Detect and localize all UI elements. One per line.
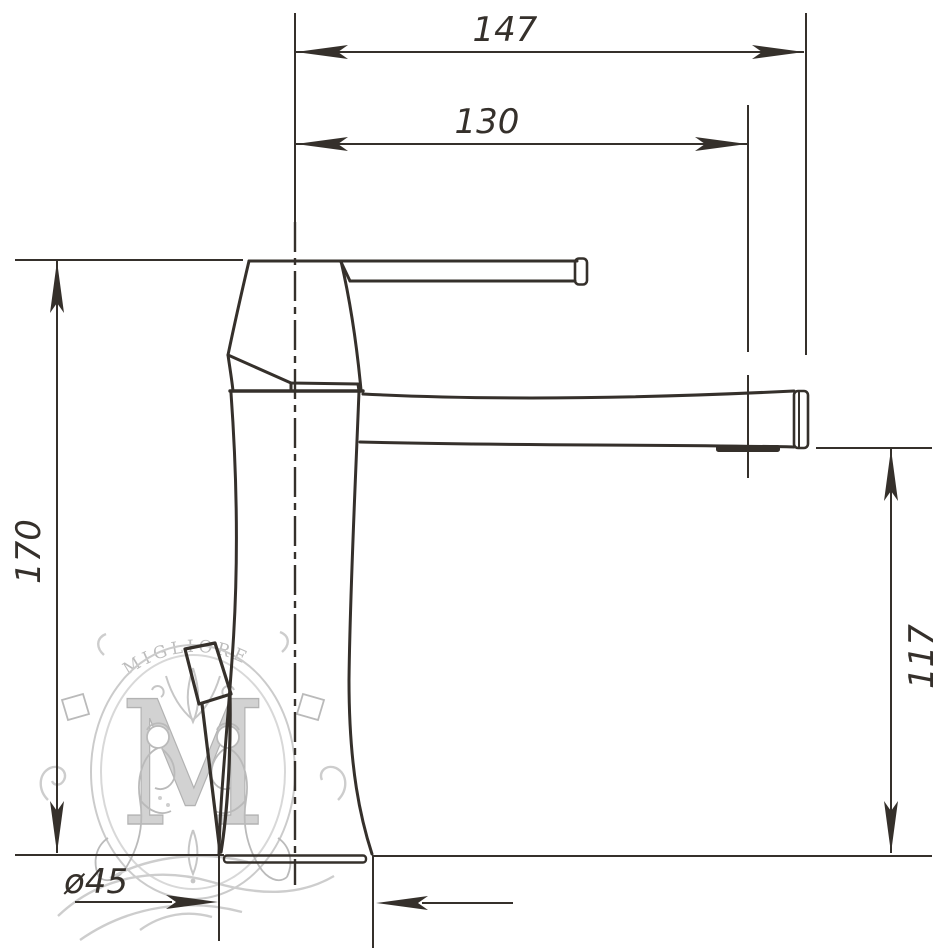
dimension-117: 117 <box>884 449 942 853</box>
dim-label-dia45: ø45 <box>63 862 128 902</box>
dim-label-170: 170 <box>9 519 49 584</box>
spout-top-edge <box>363 391 794 398</box>
technical-drawing-canvas: MIGLIORE M <box>0 0 950 950</box>
dimension-130: 130 <box>296 102 747 151</box>
cap-neck-left <box>228 355 233 391</box>
dimension-147: 147 <box>296 10 804 59</box>
watermark-monogram: M <box>120 664 266 865</box>
cap-bottom-chamfer <box>228 355 358 384</box>
dim-label-117: 117 <box>902 624 942 689</box>
spout-tip-cap <box>794 391 808 448</box>
dim-label-147: 147 <box>473 10 538 50</box>
faucet-dimension-drawing: MIGLIORE M <box>0 0 950 950</box>
dim-label-130: 130 <box>455 102 520 142</box>
arrowhead-dia45-right <box>376 896 428 910</box>
cap-left-edge <box>228 261 249 355</box>
dimension-170: 170 <box>9 261 64 853</box>
body-right-edge <box>349 391 372 854</box>
faucet-outline <box>185 259 808 863</box>
faucet-spout <box>360 391 808 452</box>
